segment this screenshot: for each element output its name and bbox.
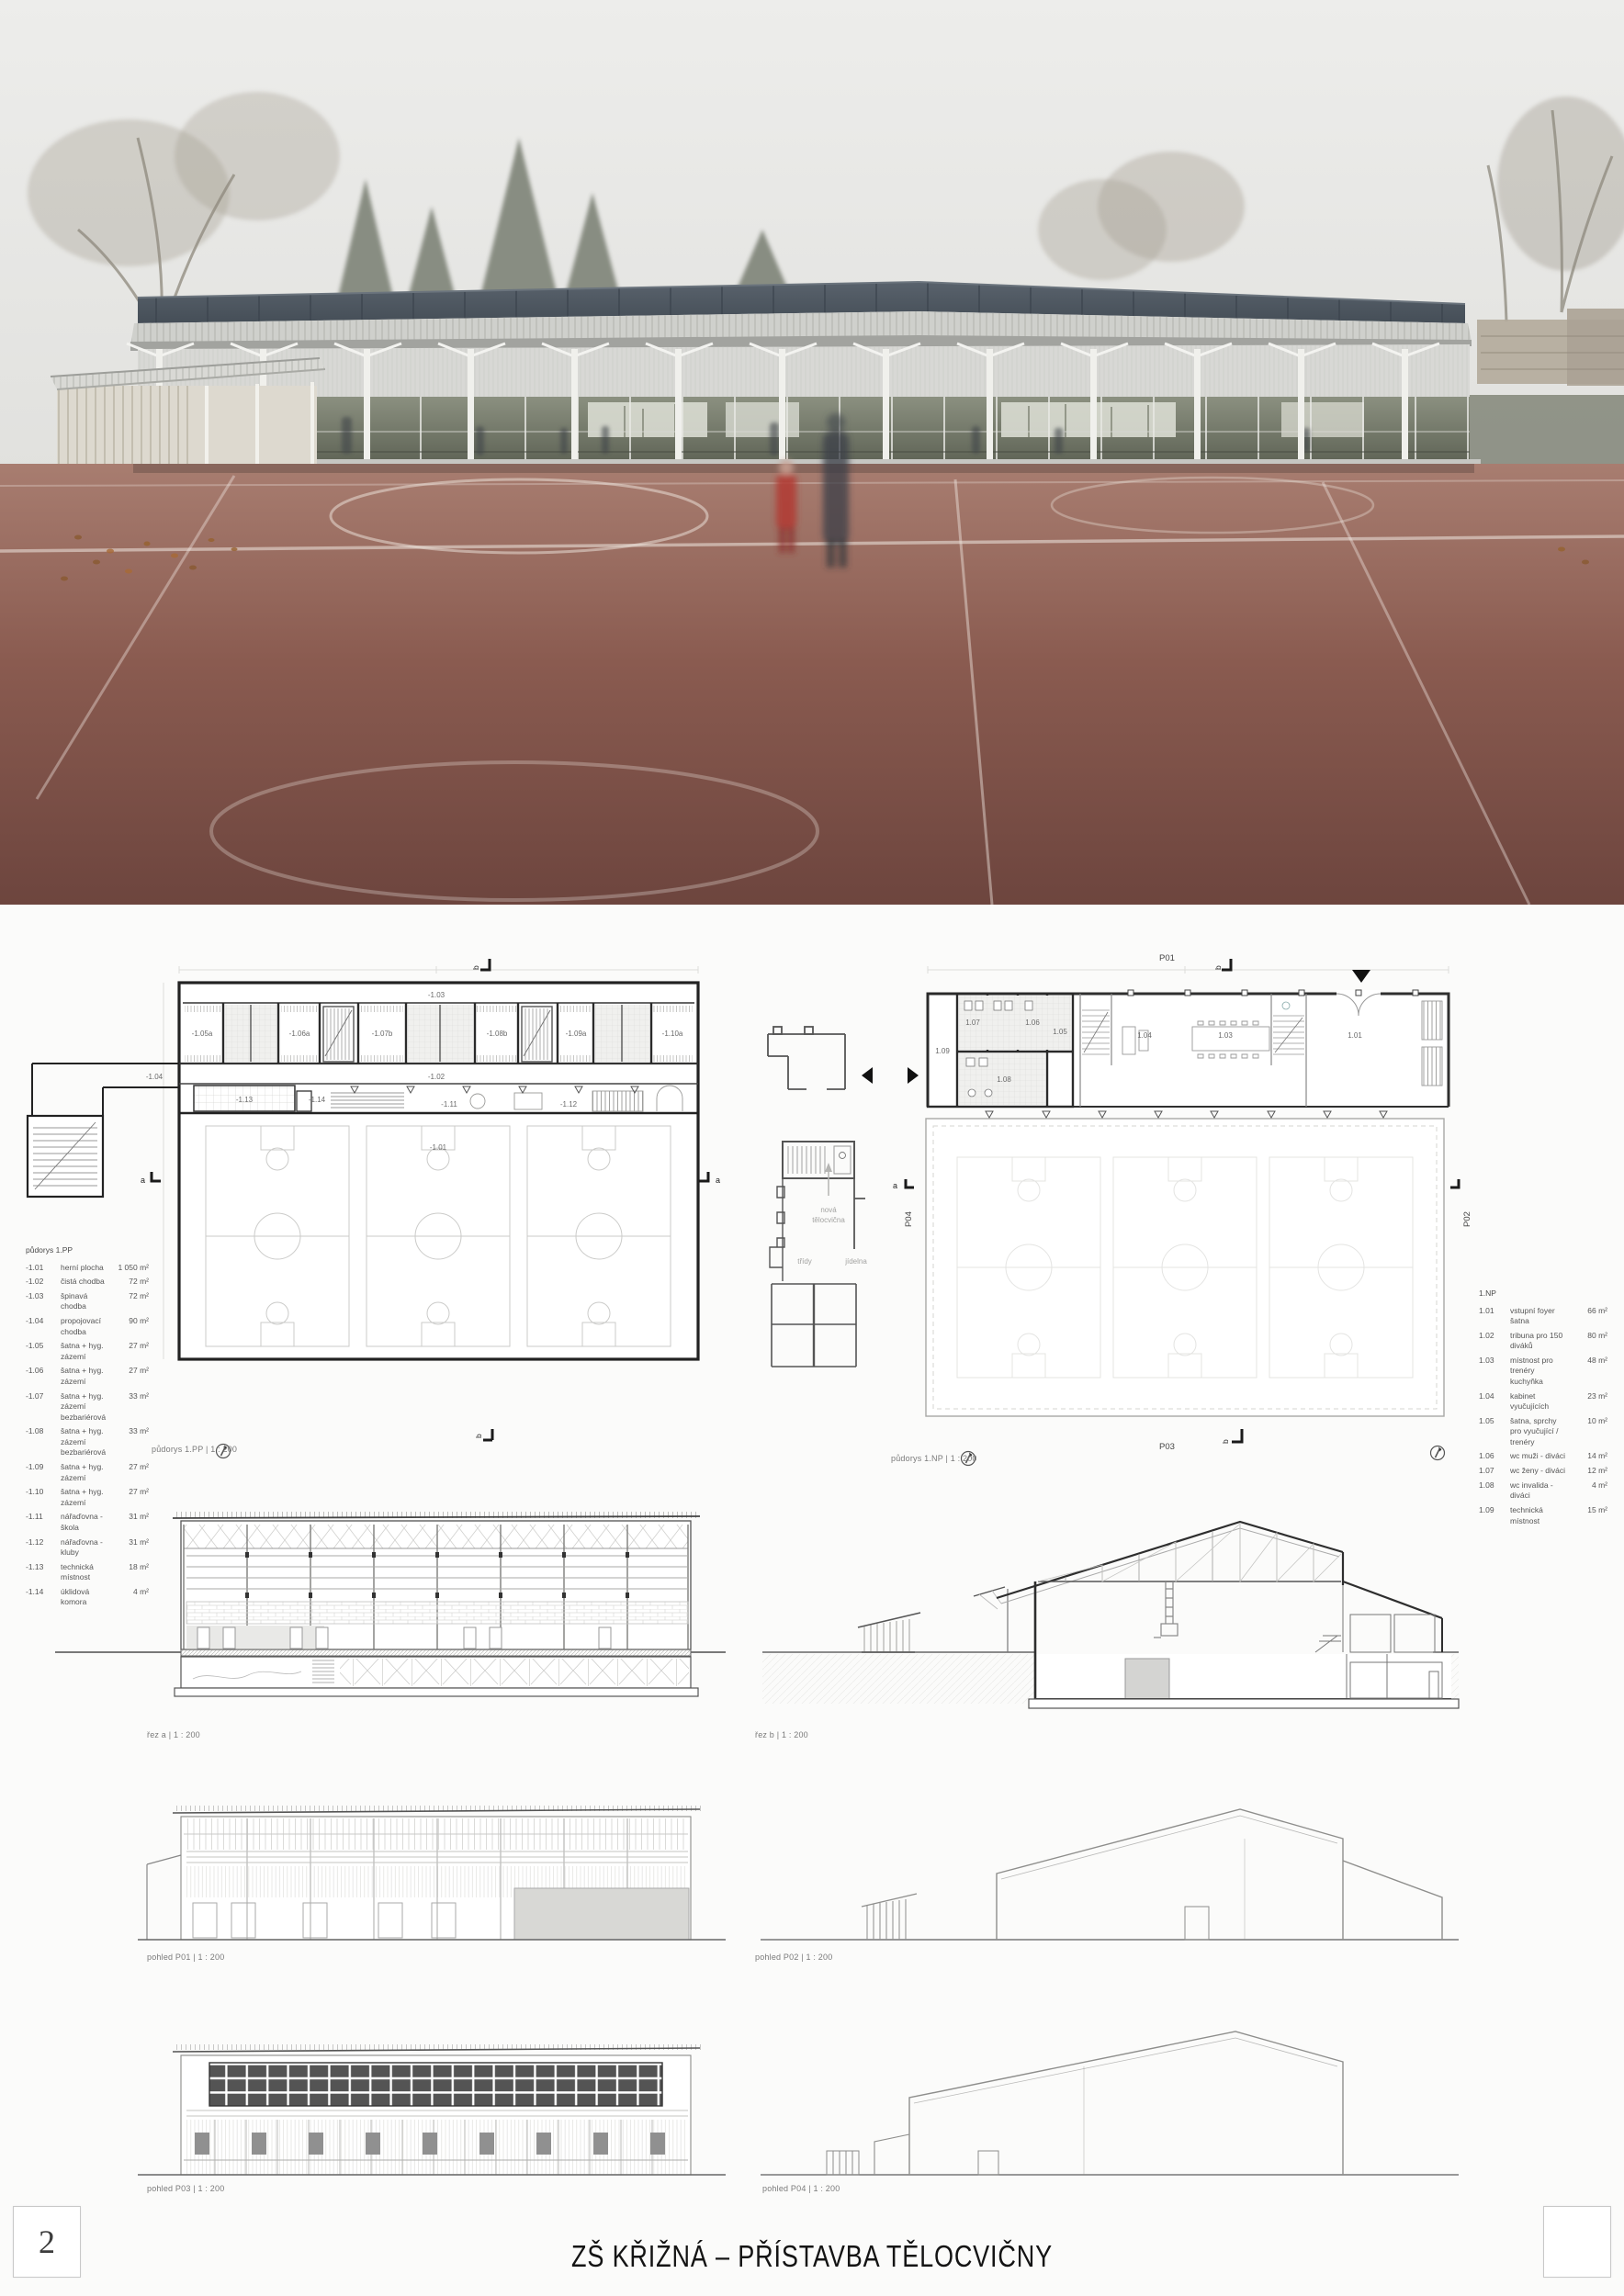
svg-text:-1.14: -1.14 (309, 1096, 326, 1104)
page-number-box: 2 (13, 2206, 81, 2278)
legend-row: -1.06šatna + hyg. zázemí27 m² (26, 1366, 149, 1387)
legend-pp-title: půdorys 1.PP (26, 1245, 149, 1256)
svg-text:-1.05a: -1.05a (192, 1030, 213, 1038)
entrance-arrow (1352, 970, 1370, 983)
legend-row: 1.01vstupní foyer šatna66 m² (1479, 1306, 1607, 1327)
p03-doors (195, 2133, 665, 2155)
legend-np-title: 1.NP (1479, 1289, 1607, 1300)
svg-text:-1.01: -1.01 (430, 1143, 447, 1152)
svg-text:a: a (141, 1176, 145, 1185)
svg-text:-1.11: -1.11 (441, 1100, 457, 1109)
svg-text:-1.02: -1.02 (428, 1073, 445, 1081)
legend-row: -1.14úklidová komora4 m² (26, 1587, 149, 1608)
svg-text:-1.03: -1.03 (428, 991, 445, 999)
render-photo (0, 0, 1624, 905)
svg-text:P01: P01 (1159, 953, 1175, 963)
legend-row: -1.08šatna + hyg. zázemí bezbariérová33 … (26, 1426, 149, 1458)
caption-section-a: řez a | 1 : 200 (147, 1730, 200, 1739)
sheet-title: ZŠ KŘIŽNÁ – PŘÍSTAVBA TĚLOCVIČNY (571, 2239, 1053, 2274)
np-column-markers (986, 1111, 1387, 1118)
drawings-sheet: -1.03 -1.05a -1.06a -1.07b -1.08b -1.09a… (0, 937, 1624, 2204)
caption-elevation-p04: pohled P04 | 1 : 200 (762, 2184, 840, 2193)
svg-text:-1.09a: -1.09a (566, 1030, 587, 1038)
legend-plan-pp: půdorys 1.PP -1.01herní plocha1 050 m² -… (26, 1245, 149, 1612)
legend-row: -1.03špinavá chodba72 m² (26, 1291, 149, 1312)
section-a (55, 1512, 726, 1696)
svg-text:-1.06a: -1.06a (289, 1030, 310, 1038)
svg-text:b: b (471, 965, 480, 970)
svg-text:1.06: 1.06 (1025, 1019, 1040, 1027)
legend-row: 1.05šatna, sprchy pro vyučující / trenér… (1479, 1416, 1607, 1448)
caption-elevation-p01: pohled P01 | 1 : 200 (147, 1953, 224, 1962)
legend-plan-np: 1.NP 1.01vstupní foyer šatna66 m² 1.02tr… (1479, 1289, 1607, 1530)
legend-row: -1.10šatna + hyg. zázemí27 m² (26, 1487, 149, 1508)
svg-text:-1.10a: -1.10a (662, 1030, 683, 1038)
page-number: 2 (39, 2223, 55, 2261)
legend-row: -1.01herní plocha1 050 m² (26, 1263, 149, 1274)
north-arrow-icon (1431, 1446, 1445, 1460)
legend-row: -1.09šatna + hyg. zázemí27 m² (26, 1462, 149, 1483)
svg-text:a: a (716, 1176, 720, 1185)
plan-1np: 1.09 1.07 1.06 1.05 1.08 1.04 1.03 1.01 … (893, 953, 1472, 1466)
legend-row: -1.05šatna + hyg. zázemí27 m² (26, 1341, 149, 1362)
legend-row: -1.12nářaďovna - kluby31 m² (26, 1537, 149, 1559)
svg-text:P04: P04 (904, 1211, 914, 1227)
legend-row: 1.09technická místnost15 m² (1479, 1505, 1607, 1526)
clerestory-grid (209, 2063, 662, 2106)
svg-text:-1.04: -1.04 (146, 1073, 164, 1081)
caption-elevation-p03: pohled P03 | 1 : 200 (147, 2184, 224, 2193)
legend-row: -1.13technická místnost18 m² (26, 1562, 149, 1583)
caption-elevation-p02: pohled P02 | 1 : 200 (755, 1953, 832, 1962)
caption-plan-np: půdorys 1.NP | 1 : 200 (891, 1454, 977, 1463)
context-plan-fragment: nová tělocvična třídy jídelna (768, 1027, 919, 1367)
connecting-corridor (28, 1064, 179, 1197)
svg-text:-1.08b: -1.08b (487, 1030, 508, 1038)
link-arrow-right (908, 1067, 919, 1084)
svg-text:P02: P02 (1462, 1211, 1472, 1227)
svg-text:P03: P03 (1159, 1442, 1175, 1452)
svg-text:b: b (1213, 965, 1223, 970)
svg-text:1.09: 1.09 (935, 1047, 950, 1055)
legend-row: 1.02tribuna pro 150 diváků80 m² (1479, 1331, 1607, 1352)
elevation-p01 (138, 1806, 726, 1940)
svg-text:1.01: 1.01 (1348, 1031, 1362, 1040)
legend-row: -1.11nářaďovna - škola31 m² (26, 1512, 149, 1533)
svg-text:1.03: 1.03 (1218, 1031, 1233, 1040)
svg-text:tělocvična: tělocvična (812, 1216, 845, 1224)
svg-text:-1.13: -1.13 (236, 1096, 254, 1104)
legend-row: 1.06wc muži - diváci14 m² (1479, 1451, 1607, 1462)
svg-text:třídy: třídy (797, 1257, 812, 1266)
corner-box (1543, 2206, 1611, 2278)
caption-section-b: řez b | 1 : 200 (755, 1730, 808, 1739)
sectionb-pavilion (858, 1613, 920, 1652)
caption-plan-pp: půdorys 1.PP | 1 : 200 (152, 1445, 237, 1454)
legend-row: 1.07wc ženy - diváci12 m² (1479, 1466, 1607, 1477)
legend-row: -1.04propojovací chodba90 m² (26, 1316, 149, 1337)
legend-row: 1.08wc invalida - diváci4 m² (1479, 1480, 1607, 1502)
elevation-p02 (761, 1809, 1459, 1940)
svg-text:1.05: 1.05 (1053, 1028, 1067, 1036)
svg-text:jídelna: jídelna (844, 1257, 867, 1266)
context-labels: nová tělocvična třídy jídelna (797, 1206, 867, 1266)
legend-row: -1.07šatna + hyg. zázemí bezbariérová33 … (26, 1391, 149, 1424)
legend-row: 1.03místnost pro trenéry kuchyňka48 m² (1479, 1356, 1607, 1388)
legend-row: -1.02čistá chodba72 m² (26, 1277, 149, 1288)
svg-text:a: a (893, 1181, 897, 1190)
elevation-p04 (761, 2032, 1459, 2175)
svg-text:b: b (474, 1434, 483, 1438)
elevation-p03 (138, 2044, 726, 2175)
section-b (762, 1522, 1459, 1708)
svg-text:b: b (1221, 1439, 1230, 1444)
svg-text:-1.12: -1.12 (560, 1100, 578, 1109)
basketball-hoop (1154, 1581, 1178, 1638)
legend-row: 1.04kabinet vyučujících23 m² (1479, 1391, 1607, 1412)
svg-text:1.08: 1.08 (997, 1075, 1011, 1084)
svg-text:nová: nová (820, 1206, 837, 1214)
link-arrow-left (862, 1067, 873, 1084)
athletic-track (0, 464, 1624, 905)
svg-text:1.07: 1.07 (965, 1019, 980, 1027)
svg-text:-1.07b: -1.07b (372, 1030, 393, 1038)
gym-building (51, 282, 1481, 472)
svg-text:1.04: 1.04 (1137, 1031, 1152, 1040)
